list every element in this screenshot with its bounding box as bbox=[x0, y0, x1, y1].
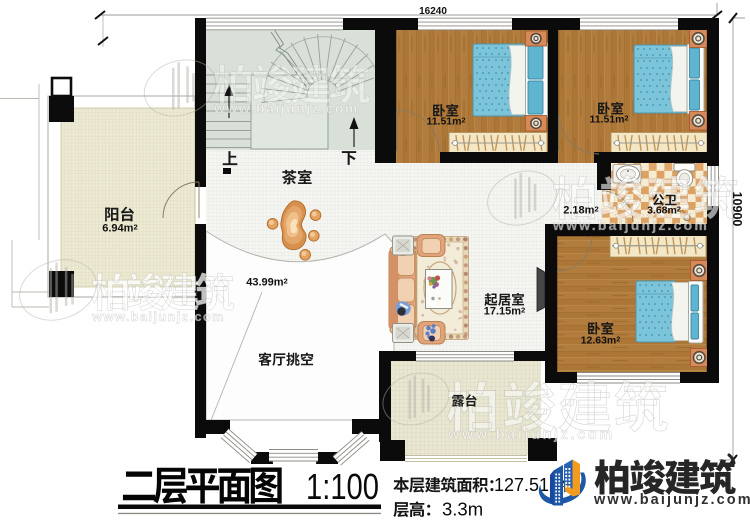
svg-text:2.18m2: 2.18m2 bbox=[563, 205, 598, 217]
svg-text:3.3m: 3.3m bbox=[442, 499, 483, 520]
svg-text:17.15m2: 17.15m2 bbox=[484, 306, 526, 318]
svg-text:www.baijunjz.com: www.baijunjz.com bbox=[447, 427, 615, 443]
svg-text:www.baijunjz.com: www.baijunjz.com bbox=[552, 217, 709, 233]
svg-text:16240: 16240 bbox=[419, 6, 447, 17]
svg-text:11.51m2: 11.51m2 bbox=[426, 116, 465, 128]
svg-text:www.baijunjz.com: www.baijunjz.com bbox=[213, 100, 359, 116]
svg-text:6.94m2: 6.94m2 bbox=[102, 223, 137, 235]
svg-text:www.baijunjz.com: www.baijunjz.com bbox=[91, 309, 225, 324]
svg-text:www.baijunjz.com: www.baijunjz.com bbox=[593, 492, 750, 508]
svg-text:3.68m2: 3.68m2 bbox=[647, 205, 681, 217]
svg-text:43.99m2: 43.99m2 bbox=[246, 277, 288, 289]
svg-text:12.63m2: 12.63m2 bbox=[581, 335, 621, 347]
svg-text:11.51m2: 11.51m2 bbox=[589, 114, 628, 126]
svg-text:1:100: 1:100 bbox=[306, 466, 379, 507]
svg-text:10900: 10900 bbox=[730, 192, 744, 227]
